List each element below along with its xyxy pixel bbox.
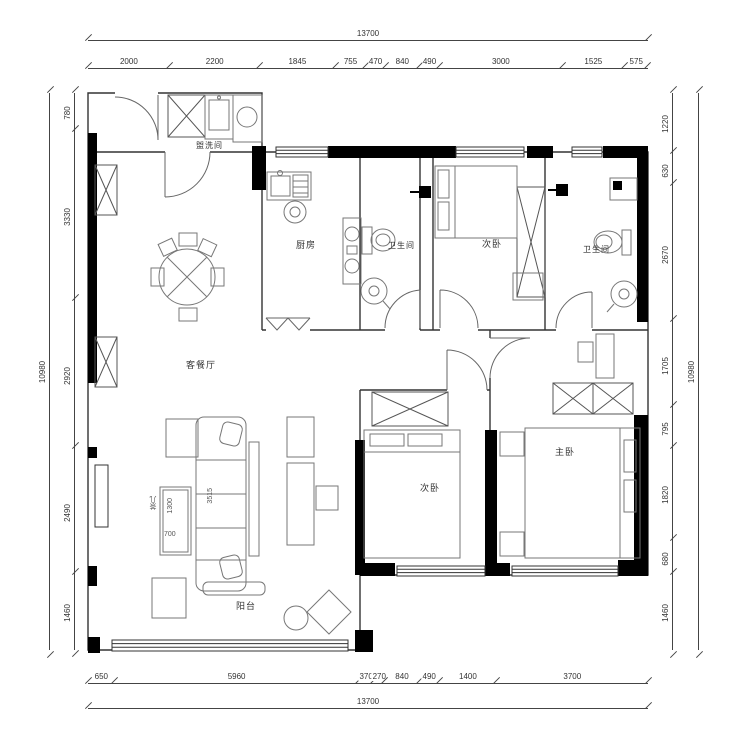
dimension-value: 2200 bbox=[205, 57, 225, 66]
floor-plan-page: 盥洗间 厨房 卫生间 次卧 卫生间 客餐厅 次卧 主卧 阳台 3515 茶几 1… bbox=[0, 0, 740, 740]
sink-icon bbox=[361, 278, 387, 304]
dimension-value: 1820 bbox=[661, 485, 670, 505]
dimension-value: 1705 bbox=[661, 356, 670, 376]
dimension-segment: 3700 bbox=[497, 683, 648, 684]
sink-icon bbox=[611, 281, 637, 307]
dimension-segment: 795 bbox=[672, 409, 673, 449]
dimension-segment: 13700 bbox=[88, 40, 648, 41]
dimension-value: 650 bbox=[94, 672, 109, 681]
dimension-value: 2490 bbox=[63, 503, 72, 523]
dimension-segment: 2000 bbox=[88, 68, 170, 69]
coffee-table-name-label: 茶几 bbox=[149, 496, 159, 510]
dimension-value: 630 bbox=[661, 163, 670, 178]
dimension-segment: 2490 bbox=[74, 450, 75, 576]
toilet-icon bbox=[362, 227, 372, 254]
furniture bbox=[151, 95, 640, 634]
desk-icon bbox=[596, 334, 614, 378]
dimension-value: 3700 bbox=[562, 672, 582, 681]
dimension-value: 840 bbox=[394, 672, 409, 681]
dimension-segment: 1525 bbox=[562, 68, 624, 69]
dimension-value: 2920 bbox=[63, 366, 72, 386]
room-label-bath1: 卫生间 bbox=[388, 240, 415, 251]
dimension-segment: 2200 bbox=[170, 68, 260, 69]
dimension-segment: 10980 bbox=[49, 93, 50, 650]
room-label-bedroom-top: 次卧 bbox=[482, 237, 502, 250]
coffee-table-icon bbox=[160, 487, 191, 555]
dimension-value: 3330 bbox=[63, 207, 72, 227]
room-label-living: 客餐厅 bbox=[186, 358, 216, 371]
dimension-value: 1460 bbox=[63, 603, 72, 623]
dimension-value: 1525 bbox=[583, 57, 603, 66]
coffee-table-length-label: 1300 bbox=[167, 498, 174, 514]
dimension-segment: 3330 bbox=[74, 133, 75, 302]
ottoman-icon bbox=[152, 578, 186, 618]
dimension-segment: 13700 bbox=[88, 708, 648, 709]
dimension-segment: 840 bbox=[385, 68, 419, 69]
dimension-value: 780 bbox=[63, 105, 72, 120]
dimension-value: 10980 bbox=[687, 359, 696, 383]
plumbing-ticks bbox=[410, 190, 556, 192]
dimension-segment: 1845 bbox=[260, 68, 335, 69]
sofa-length-label: 3515 bbox=[207, 488, 214, 504]
dimension-value: 575 bbox=[629, 57, 644, 66]
dimension-value: 490 bbox=[422, 672, 437, 681]
room-label-kitchen: 厨房 bbox=[296, 238, 316, 251]
room-label-utility: 盥洗间 bbox=[196, 140, 223, 151]
dimension-segment: 2920 bbox=[74, 301, 75, 449]
dimension-segment: 1400 bbox=[439, 683, 496, 684]
dimension-value: 680 bbox=[661, 551, 670, 566]
room-label-master: 主卧 bbox=[555, 445, 575, 458]
tv-cabinet-icon bbox=[287, 417, 314, 457]
dimension-value: 1400 bbox=[458, 672, 478, 681]
dimension-segment: 1460 bbox=[74, 576, 75, 650]
room-label-bedroom-bottom: 次卧 bbox=[420, 481, 440, 494]
doors bbox=[115, 95, 592, 390]
dimension-value: 13700 bbox=[356, 29, 380, 38]
basin-icon bbox=[237, 107, 257, 127]
dimension-segment: 2670 bbox=[672, 187, 673, 322]
dimension-value: 470 bbox=[368, 57, 383, 66]
dimension-value: 1460 bbox=[661, 603, 670, 623]
coffee-table-width-label: 700 bbox=[164, 531, 176, 538]
dimension-segment: 10980 bbox=[698, 93, 699, 650]
dimension-segment: 1705 bbox=[672, 322, 673, 409]
dimension-value: 755 bbox=[343, 57, 358, 66]
dimension-value: 1220 bbox=[661, 114, 670, 134]
floor-plan-drawing bbox=[0, 0, 740, 740]
dimension-value: 5960 bbox=[227, 672, 247, 681]
hatch-boxes bbox=[95, 95, 633, 426]
dimension-segment: 270 bbox=[374, 683, 385, 684]
dimension-segment: 1460 bbox=[672, 576, 673, 650]
bed-icon bbox=[525, 428, 640, 558]
plant-icon bbox=[284, 201, 306, 223]
rug-icon bbox=[307, 590, 351, 634]
pouf-icon bbox=[284, 606, 308, 630]
dimension-value: 2000 bbox=[119, 57, 139, 66]
dimension-value: 2670 bbox=[661, 245, 670, 265]
windows bbox=[95, 147, 618, 651]
dimension-value: 10980 bbox=[38, 359, 47, 383]
dimension-value: 490 bbox=[422, 57, 437, 66]
dimension-segment: 1820 bbox=[672, 449, 673, 541]
dimension-value: 840 bbox=[395, 57, 410, 66]
room-label-bath2: 卫生间 bbox=[583, 244, 610, 255]
bench-icon bbox=[203, 582, 265, 595]
dimension-value: 3000 bbox=[491, 57, 511, 66]
dimension-value: 1845 bbox=[287, 57, 307, 66]
dimension-segment: 3000 bbox=[440, 68, 563, 69]
dimension-value: 13700 bbox=[356, 697, 380, 706]
dimension-value: 795 bbox=[661, 421, 670, 436]
dimension-segment: 840 bbox=[385, 683, 419, 684]
dimension-segment: 1220 bbox=[672, 93, 673, 155]
dimension-segment: 575 bbox=[624, 68, 648, 69]
bed-icon bbox=[364, 430, 460, 558]
room-label-balcony: 阳台 bbox=[236, 599, 256, 612]
stove-icon bbox=[343, 218, 361, 284]
dimension-segment: 5960 bbox=[115, 683, 359, 684]
